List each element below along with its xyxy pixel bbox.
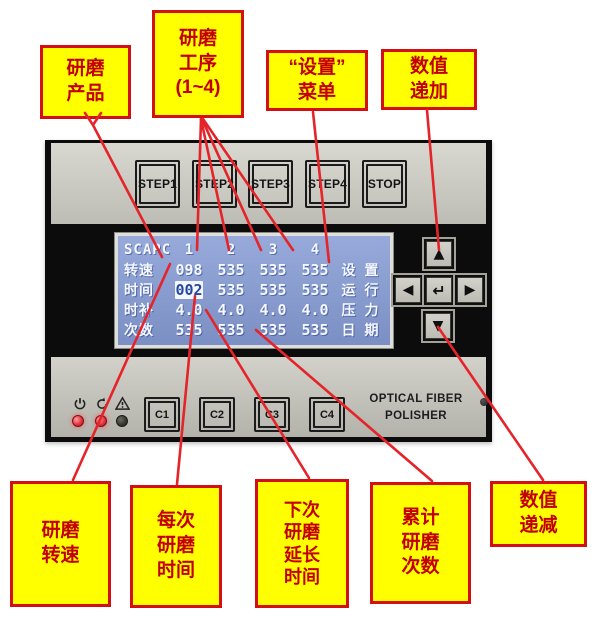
alarm-led [116,415,128,427]
step4-button[interactable]: STEP4 [305,160,350,208]
lcd-menu-date-1: 日 [338,320,359,340]
brand-line-1: OPTICAL FIBER [353,391,479,408]
lcd-screen: SCAPC 1 2 3 4 转速 098 535 535 535 设 置 时间 [118,236,390,345]
right-arrow-icon: ▶ [457,277,483,303]
top-button-panel: STEP1 STEP2 STEP3 STEP4 STOP [51,143,486,224]
callout-grind-product: 研磨 产品 [40,45,131,119]
brand-text: OPTICAL FIBER POLISHER [353,391,479,424]
lcd-row-speed: 转速 098 535 535 535 设 置 [124,260,388,280]
lcd-speed-label: 转速 [124,260,168,280]
lcd-time-value-1-selected: 002 [175,281,202,299]
lcd-column-1: 1 [168,242,210,258]
c1-button-label: C1 [148,401,176,428]
lcd-header-row: SCAPC 1 2 3 4 [124,240,388,259]
lcd-menu-set-1: 设 [338,260,359,280]
lcd-row-time: 时间 002 535 535 535 运 行 [124,280,388,300]
lcd-speed-value-4: 535 [294,261,336,279]
cycle-led [95,415,107,427]
screw [480,398,488,406]
lcd-count-value-4: 535 [294,321,336,339]
step4-button-label: STEP4 [309,164,346,204]
power-icon [73,397,87,411]
callout-value-decrease: 数值 递减 [490,481,587,547]
display-panel: SCAPC 1 2 3 4 转速 098 535 535 535 设 置 时间 [51,224,486,357]
enter-key[interactable]: ↵ [422,273,456,307]
up-arrow-icon: ▲ [426,241,452,267]
callout-grind-time-per-cycle: 每次 研磨 时间 [130,485,222,608]
lcd-product-type: SCAPC [124,242,168,258]
lcd-menu-set-2: 置 [361,260,382,280]
step1-button-label: STEP1 [139,164,176,204]
lcd-row-count: 次数 535 535 535 535 日 期 [124,320,388,340]
lcd-menu-date-2: 期 [361,320,382,340]
c4-button-label: C4 [313,401,341,428]
lcd-extend-value-3: 4.0 [252,301,294,319]
lcd-column-4: 4 [294,242,336,258]
cycle-icon [95,397,109,411]
c1-button[interactable]: C1 [144,397,180,432]
c3-button[interactable]: C3 [254,397,290,432]
callout-grind-steps: 研磨 工序 (1~4) [152,10,244,118]
lcd-menu-pressure-1: 压 [338,300,359,320]
step2-button-label: STEP2 [196,164,233,204]
lcd-menu-run-1: 运 [338,280,359,300]
lcd-count-value-2: 535 [210,321,252,339]
c4-button[interactable]: C4 [309,397,345,432]
lcd-menu-run-2: 行 [361,280,382,300]
c3-button-label: C3 [258,401,286,428]
lcd-count-value-1: 535 [168,321,210,339]
c2-button[interactable]: C2 [199,397,235,432]
step3-button-label: STEP3 [252,164,289,204]
lcd-time-value-3: 535 [252,281,294,299]
lcd-time-value-4: 535 [294,281,336,299]
power-led [72,415,84,427]
brand-line-2: POLISHER [353,408,479,425]
step2-button[interactable]: STEP2 [192,160,237,208]
c2-button-label: C2 [203,401,231,428]
lcd-speed-value-2: 535 [210,261,252,279]
lcd-frame: SCAPC 1 2 3 4 转速 098 535 535 535 设 置 时间 [114,232,394,349]
lcd-row-extend: 时补 4.0 4.0 4.0 4.0 压 力 [124,300,388,320]
lcd-speed-value-1: 098 [168,261,210,279]
callout-grind-speed: 研磨 转速 [10,481,111,607]
bottom-button-panel: C1 C2 C3 C4 OPTICAL FIBER POLISHER [51,357,486,437]
lcd-count-value-3: 535 [252,321,294,339]
lcd-menu-pressure-2: 力 [361,300,382,320]
step3-button[interactable]: STEP3 [248,160,293,208]
lcd-column-3: 3 [252,242,294,258]
lcd-extend-label: 时补 [124,300,168,320]
right-arrow-key[interactable]: ▶ [453,273,487,307]
step1-button[interactable]: STEP1 [135,160,180,208]
stop-button-label: STOP [366,164,403,204]
callout-value-increase: 数值 递加 [381,49,477,110]
lcd-time-value-2: 535 [210,281,252,299]
down-arrow-key[interactable]: ▼ [421,309,455,343]
alarm-icon [115,396,129,410]
down-arrow-icon: ▼ [425,313,451,339]
lcd-extend-value-4: 4.0 [294,301,336,319]
lcd-extend-value-1: 4.0 [168,301,210,319]
callout-settings-menu: “设置” 菜单 [266,50,368,111]
enter-icon: ↵ [426,277,452,303]
callout-next-grind-extend-time: 下次 研磨 延长 时间 [255,479,349,608]
stop-button[interactable]: STOP [362,160,407,208]
lcd-column-2: 2 [210,242,252,258]
callout-total-grind-count: 累计 研磨 次数 [370,482,471,604]
lcd-extend-value-2: 4.0 [210,301,252,319]
lcd-speed-value-3: 535 [252,261,294,279]
up-arrow-key[interactable]: ▲ [422,237,456,271]
lcd-count-label: 次数 [124,320,168,340]
left-arrow-icon: ◀ [395,277,421,303]
left-arrow-key[interactable]: ◀ [391,273,425,307]
polisher-front-panel: STEP1 STEP2 STEP3 STEP4 STOP SCAPC 1 2 3… [45,140,492,442]
lcd-time-label: 时间 [124,280,168,300]
